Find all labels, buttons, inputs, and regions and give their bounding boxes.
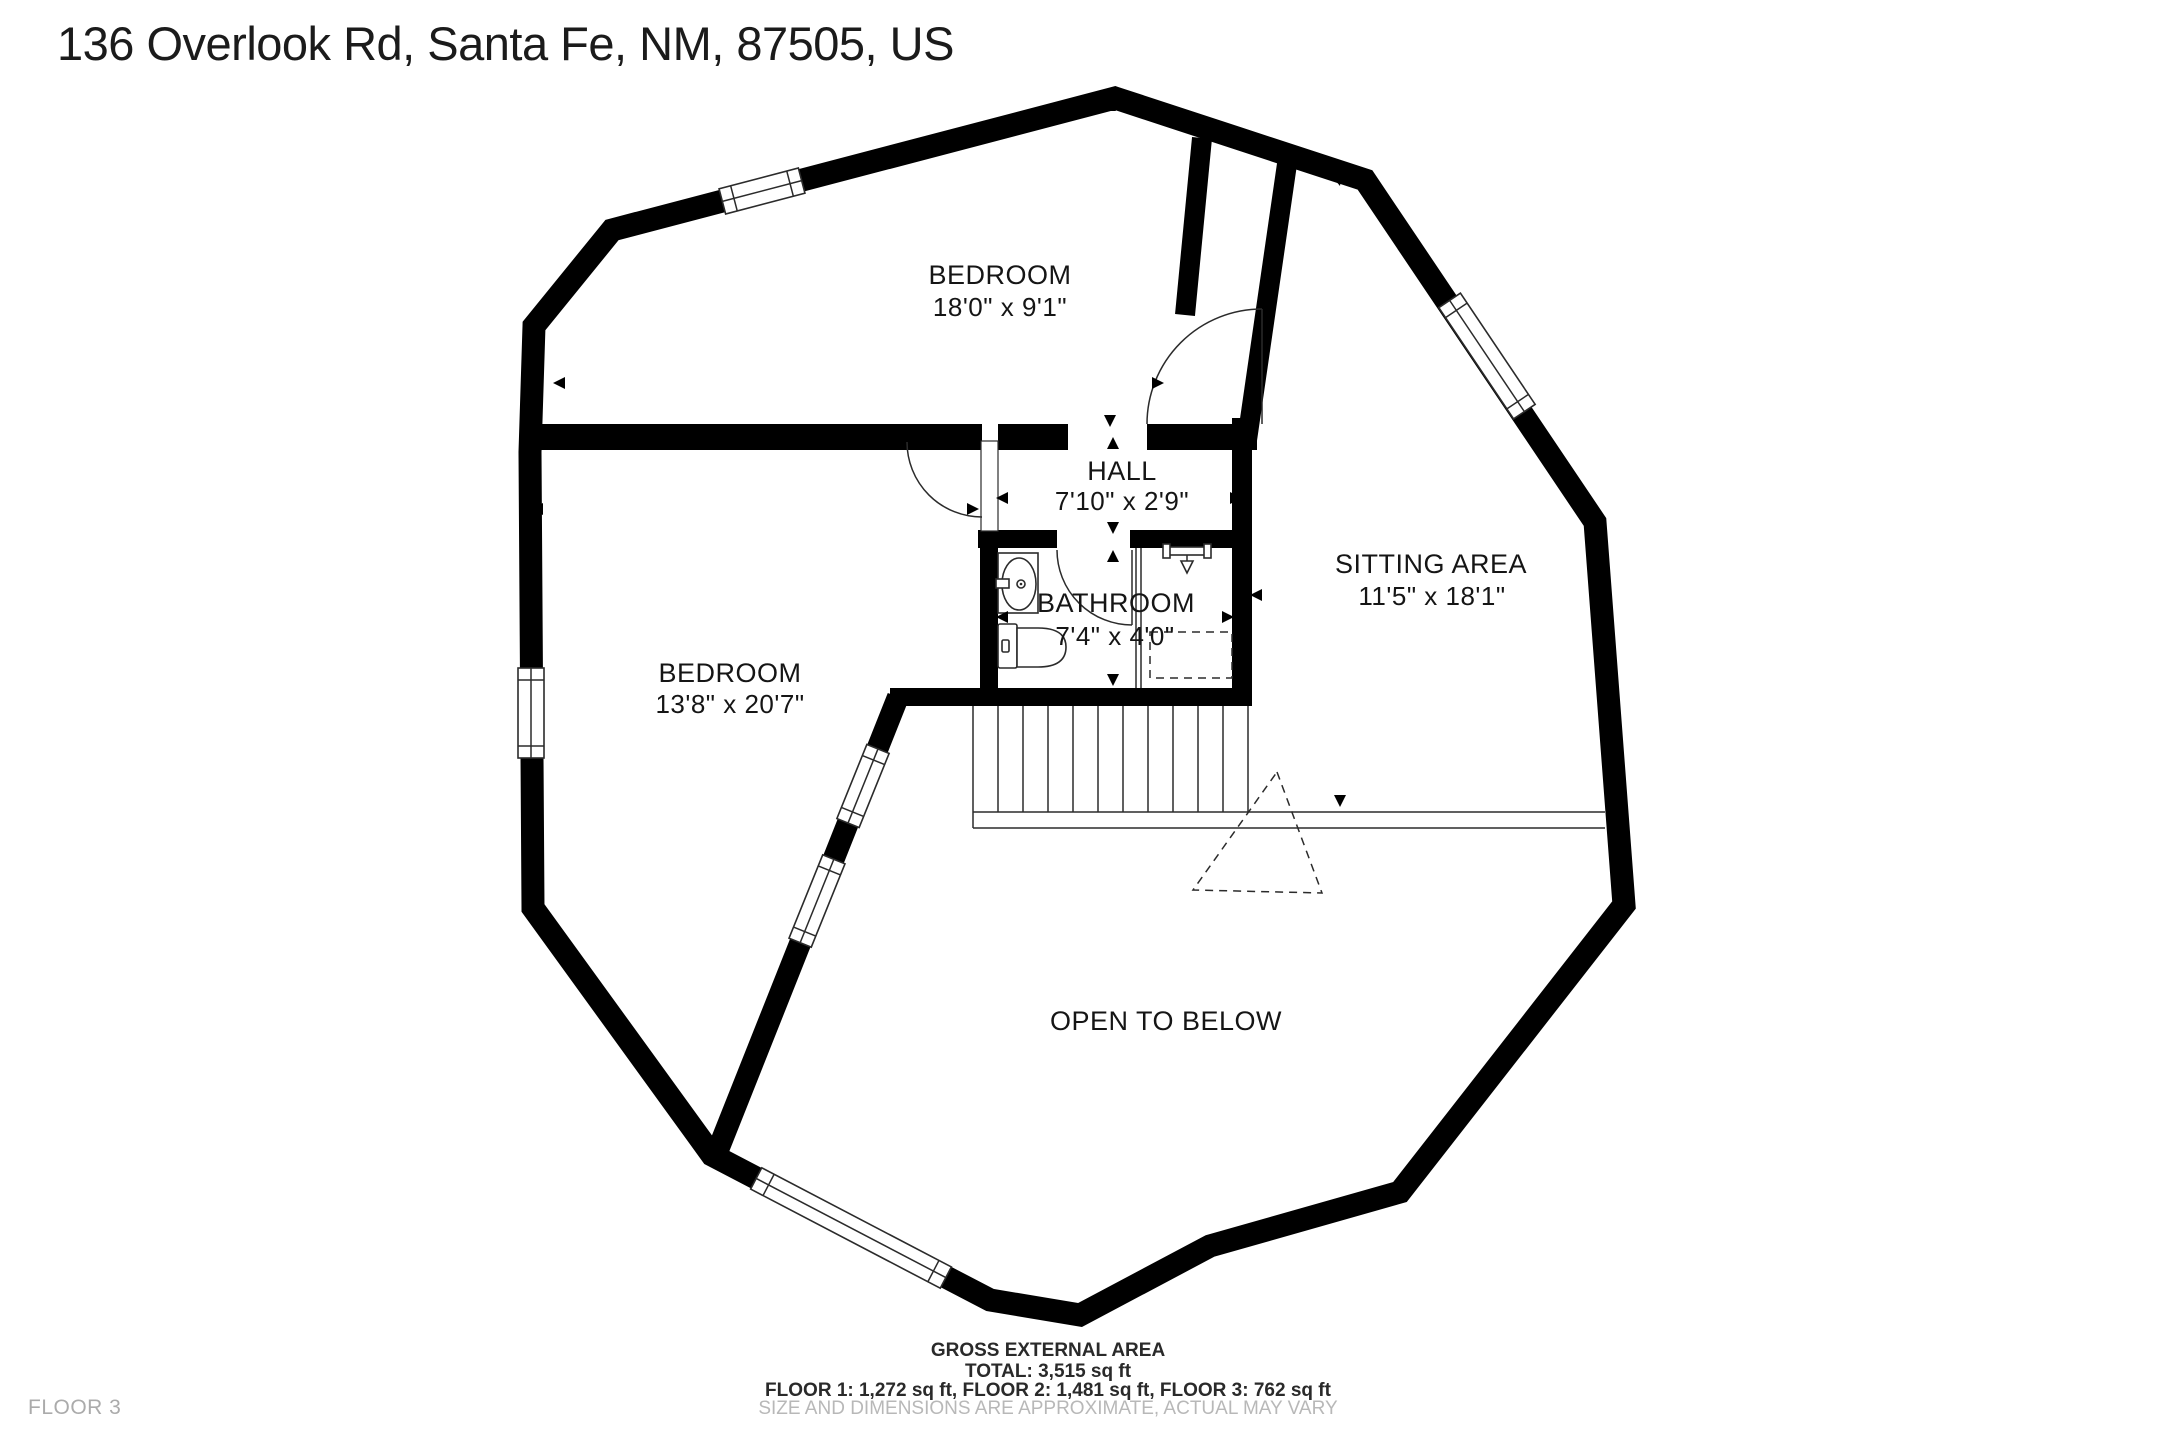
toilet-button-icon [1002,640,1009,652]
floorplan-canvas: 136 Overlook Rd, Santa Fe, NM, 87505, US [0,0,2173,1448]
wall-bath-north-left [978,530,1057,548]
sink-faucet-icon [996,579,1009,588]
wall-bath-south [890,688,1252,706]
window-west [518,668,544,758]
wall-bedroom-north [520,424,982,450]
label-bedroom-top: BEDROOM [928,260,1071,290]
label-bathroom: BATHROOM [1037,588,1195,618]
floorplan-page: 136 Overlook Rd, Santa Fe, NM, 87505, US [0,0,2173,1448]
sink-drain-dot [1020,583,1023,586]
wall-bath-west [980,548,998,688]
label-hall: HALL [1087,456,1157,486]
dims-bedroom-top: 18'0" x 9'1" [933,292,1067,322]
dims-bathroom: 7'4" x 4'0" [1055,621,1174,651]
dims-hall: 7'10" x 2'9" [1055,486,1189,516]
wall-hall-north-left [998,424,1068,450]
footer-total: TOTAL: 3,515 sq ft [965,1361,1132,1382]
footer-disclaimer: SIZE AND DIMENSIONS ARE APPROXIMATE, ACT… [758,1398,1338,1419]
floor-label: FLOOR 3 [28,1396,121,1419]
dims-bedroom-left: 13'8" x 20'7" [655,689,804,719]
wall-bath-east [1232,418,1252,706]
footer-area-title: GROSS EXTERNAL AREA [931,1340,1166,1361]
page-title: 136 Overlook Rd, Santa Fe, NM, 87505, US [57,17,954,70]
dims-sitting-area: 11'5" x 18'1" [1358,581,1505,611]
label-open-to-below: OPEN TO BELOW [1050,1006,1282,1036]
label-sitting-area: SITTING AREA [1335,549,1527,579]
label-bedroom-left: BEDROOM [658,658,801,688]
